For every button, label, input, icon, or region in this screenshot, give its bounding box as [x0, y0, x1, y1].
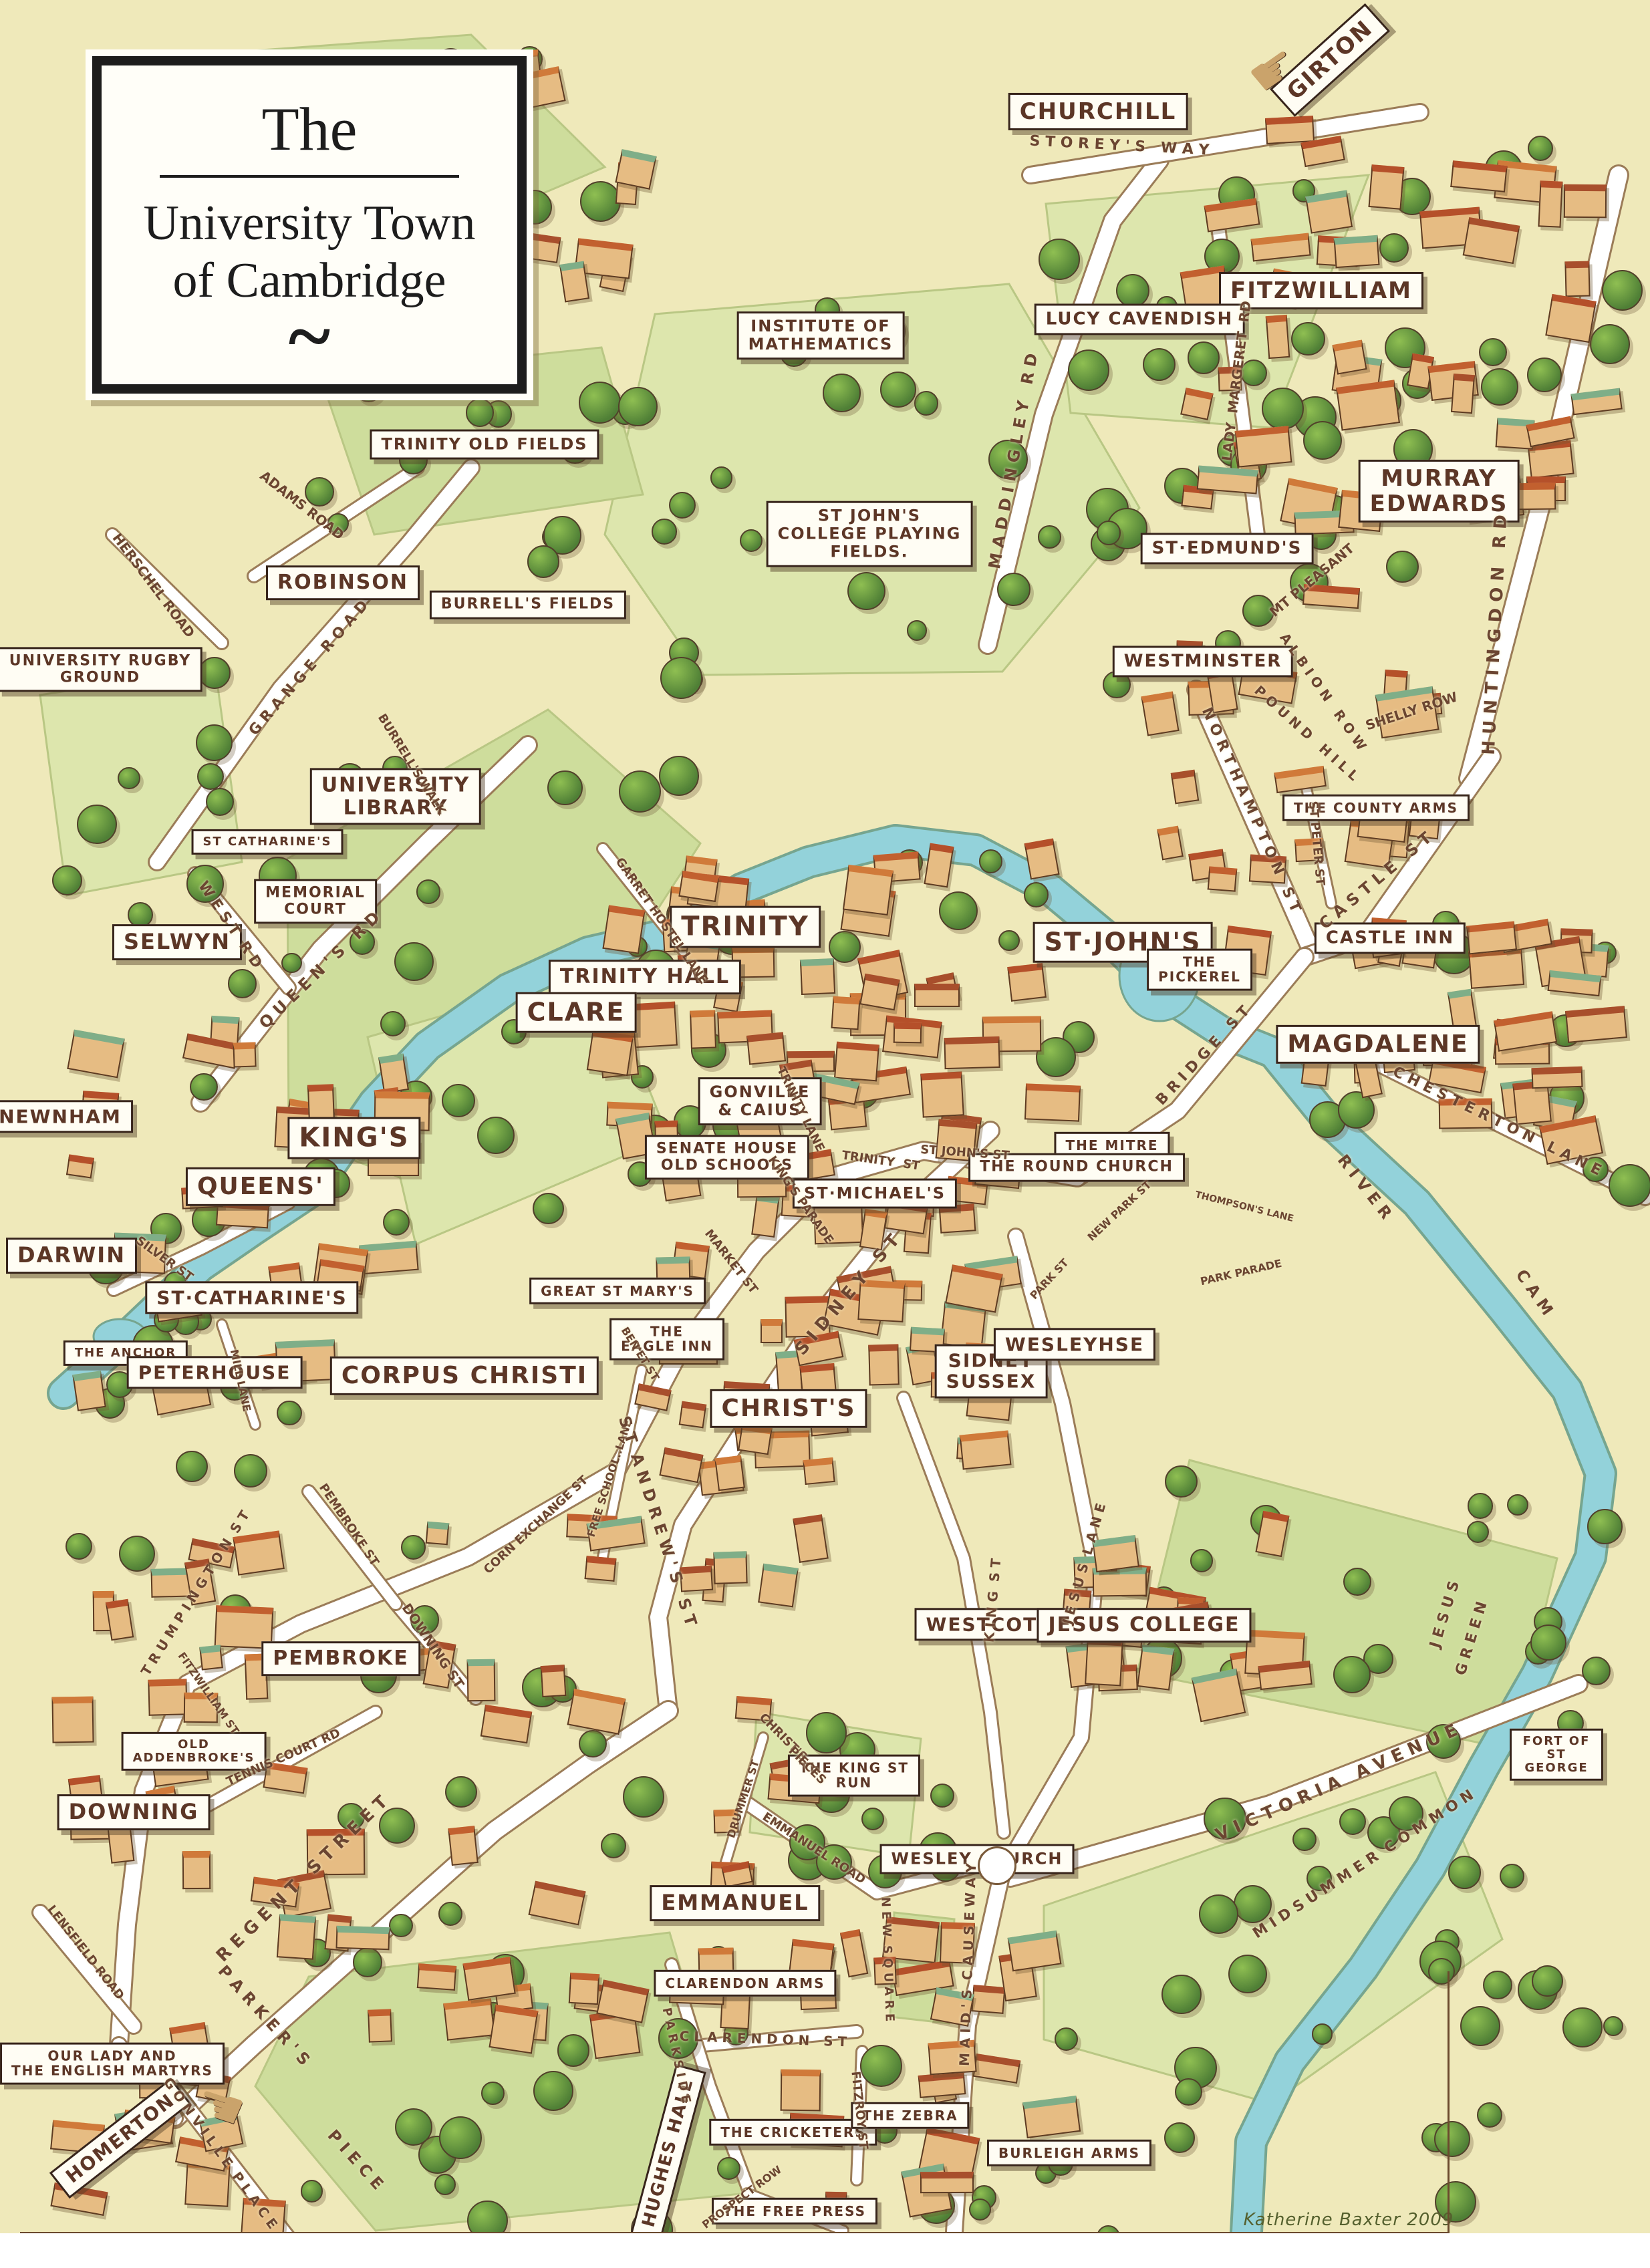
- building: [66, 1154, 94, 1178]
- tree-icon: [176, 1451, 207, 1482]
- map-title-box: The University Townof Cambridge ~: [86, 49, 533, 400]
- building: [746, 1032, 786, 1065]
- map-label-newnham: NEWNHAM: [0, 1100, 133, 1133]
- tree-icon: [1530, 1624, 1566, 1661]
- tree-icon: [710, 466, 732, 488]
- map-label-lucy-cavendish: LUCY CAVENDISH: [1035, 303, 1245, 335]
- map-label-peterhouse: PETERHOUSE: [127, 1356, 303, 1389]
- tree-icon: [395, 2108, 432, 2146]
- tree-icon: [998, 930, 1019, 951]
- building: [368, 2009, 392, 2042]
- map-label-st-catharines-field: ST CATHARINE'S: [192, 829, 343, 855]
- tree-icon: [1602, 270, 1643, 311]
- building: [944, 1036, 1000, 1069]
- tree-icon: [1036, 1037, 1076, 1077]
- building: [335, 1926, 390, 1951]
- building: [893, 1022, 922, 1042]
- tree-icon: [533, 2071, 573, 2111]
- building: [960, 1431, 1012, 1470]
- building: [920, 2172, 974, 2193]
- tree-icon: [477, 1117, 515, 1154]
- building: [1180, 388, 1214, 420]
- tree-icon: [823, 374, 861, 412]
- paper-margin: [0, 2233, 1650, 2268]
- building: [761, 1319, 783, 1343]
- building: [678, 1401, 706, 1429]
- building: [714, 1455, 745, 1492]
- map-label-institute-of-mathematics: INSTITUTE OF MATHEMATICS: [737, 311, 905, 360]
- building: [1024, 1084, 1081, 1122]
- map-border-right: [1448, 1971, 1450, 2233]
- building: [1208, 866, 1237, 891]
- tree-icon: [1038, 525, 1061, 548]
- building: [1234, 426, 1292, 468]
- building: [1197, 465, 1258, 494]
- map-label-fort-of-st-george: FORT OF ST GEORGE: [1510, 1729, 1603, 1781]
- tree-icon: [1481, 368, 1518, 406]
- building: [199, 1645, 223, 1670]
- tree-icon: [439, 2116, 482, 2159]
- tree-icon: [619, 770, 661, 813]
- building: [1368, 164, 1404, 210]
- map-label-queens: QUEENS': [186, 1167, 335, 1206]
- tree-icon: [806, 1712, 847, 1753]
- tree-icon: [1448, 1856, 1481, 1888]
- tree-icon: [228, 969, 257, 998]
- building: [1334, 235, 1380, 268]
- tree-icon: [1291, 322, 1325, 356]
- tree-icon: [416, 879, 440, 903]
- tree-icon: [580, 181, 621, 222]
- tree-icon: [1343, 1568, 1371, 1596]
- map-label-the-pickerel: THE PICKEREL: [1147, 949, 1252, 991]
- tree-icon: [914, 391, 938, 415]
- building: [569, 1973, 599, 2005]
- building: [914, 984, 960, 1007]
- tree-icon: [717, 2157, 740, 2180]
- map-label-great-st-marys: GREAT ST MARY'S: [529, 1278, 706, 1304]
- map-label-corpus-christi: CORPUS CHRISTI: [330, 1357, 599, 1395]
- map-title: The University Townof Cambridge ~: [92, 56, 527, 394]
- tree-icon: [277, 1401, 302, 1426]
- tree-icon: [1587, 1509, 1622, 1544]
- tree-icon: [997, 573, 1030, 606]
- building: [425, 1521, 449, 1545]
- map-label-burrells-fields: BURRELL'S FIELDS: [430, 591, 626, 619]
- building: [972, 1985, 1006, 2014]
- building: [780, 2070, 821, 2112]
- tree-icon: [206, 788, 234, 816]
- tree-icon: [1165, 1465, 1198, 1498]
- tree-icon: [1609, 1164, 1650, 1207]
- building: [1022, 2096, 1081, 2138]
- tree-icon: [579, 1730, 607, 1758]
- map-label-robinson: ROBINSON: [266, 565, 420, 600]
- tree-icon: [380, 1011, 406, 1036]
- tree-icon: [389, 1914, 413, 1938]
- tree-icon: [579, 382, 621, 424]
- building: [584, 1556, 616, 1582]
- tree-icon: [353, 1947, 383, 1977]
- building: [859, 974, 900, 1011]
- building: [359, 1241, 418, 1275]
- map-label-memorial-court: MEMORIAL COURT: [254, 879, 377, 924]
- map-label-university-rugby-ground: UNIVERSITY RUGBY GROUND: [0, 647, 202, 692]
- tree-icon: [527, 545, 559, 577]
- tree-icon: [1055, 2027, 1078, 2051]
- building: [51, 1697, 94, 1743]
- tree-icon: [445, 1776, 477, 1808]
- tree-icon: [401, 1535, 425, 1559]
- tree-icon: [1386, 551, 1418, 583]
- map-canvas: CHURCHILLGIRTONFITZWILLIAMLUCY CAVENDISH…: [0, 0, 1650, 2233]
- tree-icon: [652, 519, 678, 545]
- building: [462, 1957, 516, 2000]
- building: [1305, 190, 1353, 233]
- map-label-downing: DOWNING: [57, 1794, 211, 1830]
- tree-icon: [1097, 521, 1121, 545]
- map-label-westminster: WESTMINSTER: [1113, 646, 1293, 677]
- tree-icon: [547, 770, 583, 806]
- tree-icon: [1479, 338, 1506, 366]
- tree-icon: [860, 2045, 902, 2087]
- building: [1085, 1638, 1124, 1687]
- map-label-churchill: CHURCHILL: [1008, 93, 1188, 130]
- tree-icon: [1161, 1975, 1202, 2015]
- map-label-clarendon-arms: CLARENDON ARMS: [654, 1970, 836, 1997]
- building: [758, 1564, 798, 1607]
- map-label-clare: CLARE: [516, 992, 637, 1033]
- building: [489, 2004, 539, 2053]
- building: [148, 1679, 188, 1716]
- tree-icon: [1500, 1864, 1524, 1888]
- tree-icon: [659, 756, 699, 796]
- building: [72, 1371, 106, 1411]
- building: [233, 1530, 285, 1575]
- tree-icon: [533, 1193, 564, 1224]
- tree-icon: [880, 372, 916, 408]
- building: [448, 1826, 478, 1866]
- building: [1451, 374, 1475, 414]
- tree-icon: [939, 891, 978, 931]
- title-rule: [160, 175, 459, 178]
- building: [1266, 315, 1290, 359]
- tree-icon: [660, 657, 702, 699]
- tree-icon: [1590, 324, 1630, 364]
- building: [1332, 339, 1367, 374]
- tree-icon: [1434, 2121, 1470, 2157]
- tree-icon: [301, 2180, 323, 2202]
- building: [540, 1665, 566, 1697]
- building: [417, 1964, 456, 1991]
- tree-icon: [1199, 1894, 1238, 1934]
- map-label-old-addenbrokes: OLD ADDENBROKE'S: [122, 1732, 267, 1771]
- tree-icon: [1477, 2102, 1502, 2128]
- road: [309, 1492, 396, 1604]
- map-label-darwin: DARWIN: [6, 1238, 137, 1274]
- tree-icon: [1175, 2078, 1202, 2106]
- map-label-trinity-hall: TRINITY HALL: [549, 960, 741, 994]
- tree-icon: [481, 2082, 504, 2104]
- cambridge-map: CHURCHILLGIRTONFITZWILLIAMLUCY CAVENDISH…: [0, 0, 1650, 2268]
- building: [1171, 770, 1199, 805]
- tree-icon: [1190, 1549, 1213, 1572]
- building: [615, 149, 658, 190]
- building: [1192, 1669, 1246, 1723]
- tree-icon: [52, 865, 82, 895]
- building: [1024, 839, 1059, 880]
- tree-icon: [1039, 239, 1079, 279]
- building: [182, 1851, 211, 1889]
- tree-icon: [1262, 388, 1304, 430]
- building: [803, 1457, 835, 1485]
- map-label-kings: KING'S: [287, 1117, 420, 1159]
- building: [1564, 184, 1607, 219]
- building: [1008, 963, 1047, 1001]
- building: [1137, 1645, 1175, 1690]
- tree-icon: [118, 767, 140, 790]
- building: [1564, 261, 1590, 297]
- tree-icon: [394, 942, 434, 982]
- building: [834, 1042, 879, 1082]
- building: [1336, 380, 1400, 430]
- title-flourish: ~: [289, 316, 330, 356]
- map-label-castle-inn: CASTLE INN: [1315, 922, 1466, 954]
- building: [868, 1344, 899, 1386]
- map-label-murray-edwards: MURRAY EDWARDS: [1359, 460, 1520, 523]
- building: [1092, 1535, 1139, 1572]
- building: [714, 1551, 748, 1584]
- building: [1565, 1006, 1627, 1043]
- building: [920, 1071, 964, 1117]
- map-label-burleigh-arms: BURLEIGH ARMS: [987, 2140, 1151, 2166]
- tree-icon: [618, 387, 658, 426]
- tree-icon: [907, 620, 928, 641]
- map-label-our-lady-english-martyrs: OUR LADY AND THE ENGLISH MARTYRS: [0, 2043, 225, 2085]
- map-label-the-zebra: THE ZEBRA: [851, 2102, 969, 2129]
- building: [843, 865, 894, 915]
- tree-icon: [623, 1776, 664, 1818]
- map-label-trinity: TRINITY: [670, 906, 821, 948]
- tree-icon: [1468, 1493, 1493, 1518]
- building: [800, 958, 835, 995]
- tree-icon: [1188, 341, 1220, 374]
- map-label-university-library: UNIVERSITY LIBRARY: [310, 768, 481, 825]
- building: [603, 905, 646, 954]
- map-label-wesley-hse: WESLEYHSE: [994, 1328, 1155, 1361]
- map-label-emmanuel: EMMANUEL: [650, 1885, 820, 1921]
- tree-icon: [1507, 1494, 1528, 1516]
- building: [277, 1915, 316, 1960]
- tree-icon: [1428, 1958, 1455, 1985]
- tree-icon: [1228, 1955, 1267, 1993]
- building: [1466, 921, 1517, 954]
- map-label-st-edmunds: ST·EDMUND'S: [1141, 533, 1314, 564]
- tree-icon: [198, 657, 231, 689]
- tree-icon: [190, 1073, 218, 1101]
- tree-icon: [197, 763, 224, 790]
- tree-icon: [442, 1084, 475, 1117]
- map-label-trinity-old-fields: TRINITY OLD FIELDS: [370, 430, 599, 460]
- map-label-st-michaels: ST·MICHAEL'S: [793, 1179, 957, 1209]
- tree-icon: [466, 398, 494, 426]
- map-label-magdalene: MAGDALENE: [1276, 1025, 1480, 1064]
- map-label-christs: CHRIST'S: [710, 1389, 867, 1428]
- tree-icon: [119, 1536, 155, 1572]
- map-label-pembroke: PEMBROKE: [261, 1641, 420, 1676]
- title-line-1: The: [261, 94, 357, 164]
- tree-icon: [1483, 1971, 1512, 1999]
- building: [1531, 1066, 1583, 1088]
- tree-icon: [77, 805, 117, 845]
- four-lamps-roundabout: [978, 1846, 1016, 1885]
- building: [918, 2072, 966, 2098]
- building: [587, 1030, 634, 1076]
- tree-icon: [438, 1902, 462, 1926]
- artist-signature: Katherine Baxter 2009: [1244, 2210, 1454, 2230]
- map-label-st-catharines: ST·CATHARINE'S: [145, 1281, 358, 1314]
- building: [466, 1659, 495, 1702]
- tree-icon: [979, 849, 1003, 873]
- building: [233, 1042, 256, 1067]
- building: [751, 1194, 780, 1238]
- tree-icon: [1292, 1828, 1316, 1851]
- tree-icon: [669, 492, 696, 519]
- tree-icon: [557, 2034, 590, 2067]
- tree-icon: [1562, 2007, 1603, 2047]
- building: [1538, 180, 1562, 228]
- map-label-st-johns-playing-fields: ST JOHN'S COLLEGE PLAYING FIELDS.: [767, 501, 973, 567]
- tree-icon: [1532, 1965, 1563, 1997]
- building: [444, 1998, 496, 2041]
- building: [831, 996, 860, 1030]
- building: [690, 1010, 716, 1048]
- building: [1450, 160, 1507, 192]
- tree-icon: [1312, 2023, 1333, 2045]
- building: [480, 1705, 533, 1743]
- tree-icon: [1024, 882, 1049, 907]
- building: [1265, 116, 1315, 144]
- building: [1545, 294, 1596, 343]
- tree-icon: [1116, 274, 1150, 308]
- tree-icon: [281, 953, 301, 973]
- tree-icon: [1527, 358, 1562, 392]
- building: [1141, 692, 1179, 737]
